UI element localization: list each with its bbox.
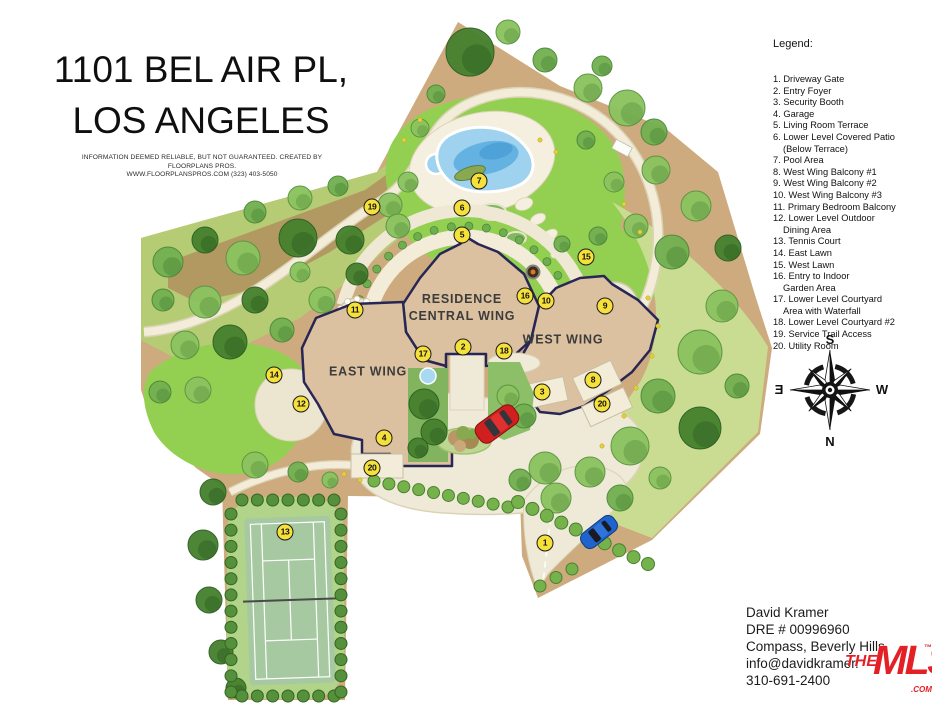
- agent-name: David Kramer: [746, 604, 885, 621]
- compass-label-east: E: [774, 382, 783, 397]
- map-marker-20: 20: [594, 396, 611, 413]
- waterfall-pond: [420, 368, 436, 384]
- map-marker-9: 9: [597, 298, 614, 315]
- legend-item: 7. Pool Area: [773, 155, 931, 167]
- site-plan-page: 1101 BEL AIR PL, LOS ANGELES INFORMATION…: [0, 0, 932, 720]
- page-title: 1101 BEL AIR PL, LOS ANGELES: [34, 44, 368, 146]
- legend-item: 4. Garage: [773, 109, 931, 121]
- legend-item: 2. Entry Foyer: [773, 86, 931, 98]
- map-marker-5: 5: [454, 227, 471, 244]
- legend-item: 5. Living Room Terrace: [773, 120, 931, 132]
- map-marker-7: 7: [471, 173, 488, 190]
- title-line-1: 1101 BEL AIR PL,: [34, 44, 368, 95]
- map-marker-16: 16: [517, 288, 534, 305]
- label-east-wing: EAST WING: [329, 364, 407, 381]
- legend-item: 10. West Wing Balcony #3: [773, 190, 931, 202]
- agent-dre: DRE # 00996960: [746, 621, 885, 638]
- title-line-2: LOS ANGELES: [34, 95, 368, 146]
- fire-pit: [527, 266, 540, 279]
- map-marker-11: 11: [347, 302, 364, 319]
- disclaimer-line-2: WWW.FLOORPLANSPROS.COM (323) 403-5050: [64, 171, 340, 180]
- label-residence: RESIDENCE CENTRAL WING: [409, 291, 516, 325]
- map-marker-6: 6: [454, 200, 471, 217]
- legend-item: 13. Tennis Court: [773, 236, 931, 248]
- legend-item: 16. Entry to IndoorGarden Area: [773, 271, 931, 294]
- legend-item: 1. Driveway Gate: [773, 74, 931, 86]
- compass-label-south: S: [826, 332, 835, 347]
- map-marker-3: 3: [534, 384, 551, 401]
- legend-item: 8. West Wing Balcony #1: [773, 167, 931, 179]
- map-marker-12: 12: [293, 396, 310, 413]
- map-marker-19: 19: [364, 199, 381, 216]
- legend-item: 14. East Lawn: [773, 248, 931, 260]
- map-marker-10: 10: [538, 293, 555, 310]
- map-marker-8: 8: [585, 372, 602, 389]
- disclaimer: INFORMATION DEEMED RELIABLE, BUT NOT GUA…: [64, 154, 340, 180]
- map-marker-13: 13: [277, 524, 294, 541]
- compass-label-north: N: [825, 434, 834, 449]
- legend-item: 11. Primary Bedroom Balcony: [773, 202, 931, 214]
- disclaimer-line-1: INFORMATION DEEMED RELIABLE, BUT NOT GUA…: [64, 154, 340, 171]
- legend-item: 17. Lower Level CourtyardArea with Water…: [773, 294, 931, 317]
- legend-item: 15. West Lawn: [773, 260, 931, 272]
- map-marker-14: 14: [266, 367, 283, 384]
- mls-logo-com: .COM: [911, 685, 932, 694]
- legend-item: 12. Lower Level OutdoorDining Area: [773, 213, 931, 236]
- legend-item: 6. Lower Level Covered Patio(Below Terra…: [773, 132, 931, 155]
- map-marker-20: 20: [364, 460, 381, 477]
- map-marker-2: 2: [455, 339, 472, 356]
- compass-rose: S N W E: [770, 330, 890, 450]
- map-marker-15: 15: [578, 249, 595, 266]
- entry-walk: [450, 352, 484, 410]
- map-marker-4: 4: [376, 430, 393, 447]
- legend-heading: Legend:: [773, 38, 931, 50]
- legend: Legend: 1. Driveway Gate2. Entry Foyer3.…: [773, 38, 931, 352]
- mls-logo-tm: ™: [924, 643, 932, 652]
- legend-item: 9. West Wing Balcony #2: [773, 178, 931, 190]
- map-marker-17: 17: [415, 346, 432, 363]
- mls-logo: THE MLS ™ .COM: [845, 643, 932, 705]
- label-west-wing: WEST WING: [523, 332, 604, 349]
- map-marker-18: 18: [496, 343, 513, 360]
- map-marker-1: 1: [537, 535, 554, 552]
- compass-label-west: W: [876, 382, 889, 397]
- legend-item: 18. Lower Level Courtyard #2: [773, 317, 931, 329]
- legend-item: 3. Security Booth: [773, 97, 931, 109]
- legend-list: 1. Driveway Gate2. Entry Foyer3. Securit…: [773, 74, 931, 352]
